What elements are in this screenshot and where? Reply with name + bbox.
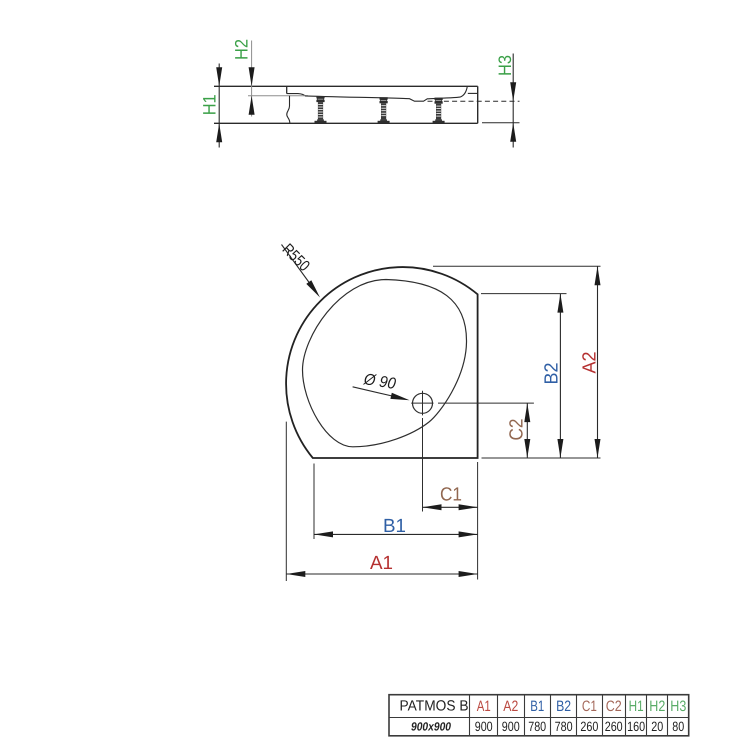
svg-text:260: 260 [580, 719, 598, 734]
svg-text:900: 900 [502, 719, 520, 734]
svg-text:A2: A2 [579, 352, 600, 374]
svg-text:A1: A1 [370, 553, 393, 574]
svg-text:H3: H3 [670, 698, 686, 715]
svg-text:260: 260 [605, 719, 623, 734]
svg-text:C2: C2 [507, 419, 528, 441]
svg-text:C1: C1 [440, 485, 462, 506]
svg-text:H2: H2 [649, 698, 665, 715]
svg-text:A2: A2 [503, 698, 518, 715]
svg-text:900: 900 [475, 719, 493, 734]
svg-text:A1: A1 [477, 698, 491, 715]
svg-text:H3: H3 [495, 55, 515, 76]
svg-text:160: 160 [627, 719, 645, 734]
svg-text:780: 780 [528, 719, 546, 734]
svg-text:20: 20 [651, 719, 663, 734]
svg-text:C1: C1 [582, 698, 597, 715]
svg-text:780: 780 [555, 719, 573, 734]
svg-text:B2: B2 [542, 363, 563, 385]
svg-text:PATMOS B: PATMOS B [400, 699, 469, 715]
svg-text:B1: B1 [530, 698, 544, 715]
svg-text:80: 80 [672, 719, 684, 734]
svg-text:B1: B1 [383, 516, 406, 537]
svg-text:900x900: 900x900 [411, 719, 451, 733]
svg-text:H1: H1 [629, 698, 644, 715]
svg-text:C2: C2 [606, 698, 622, 715]
svg-text:H2: H2 [231, 39, 251, 60]
svg-text:B2: B2 [556, 698, 571, 715]
svg-text:H1: H1 [199, 94, 219, 115]
